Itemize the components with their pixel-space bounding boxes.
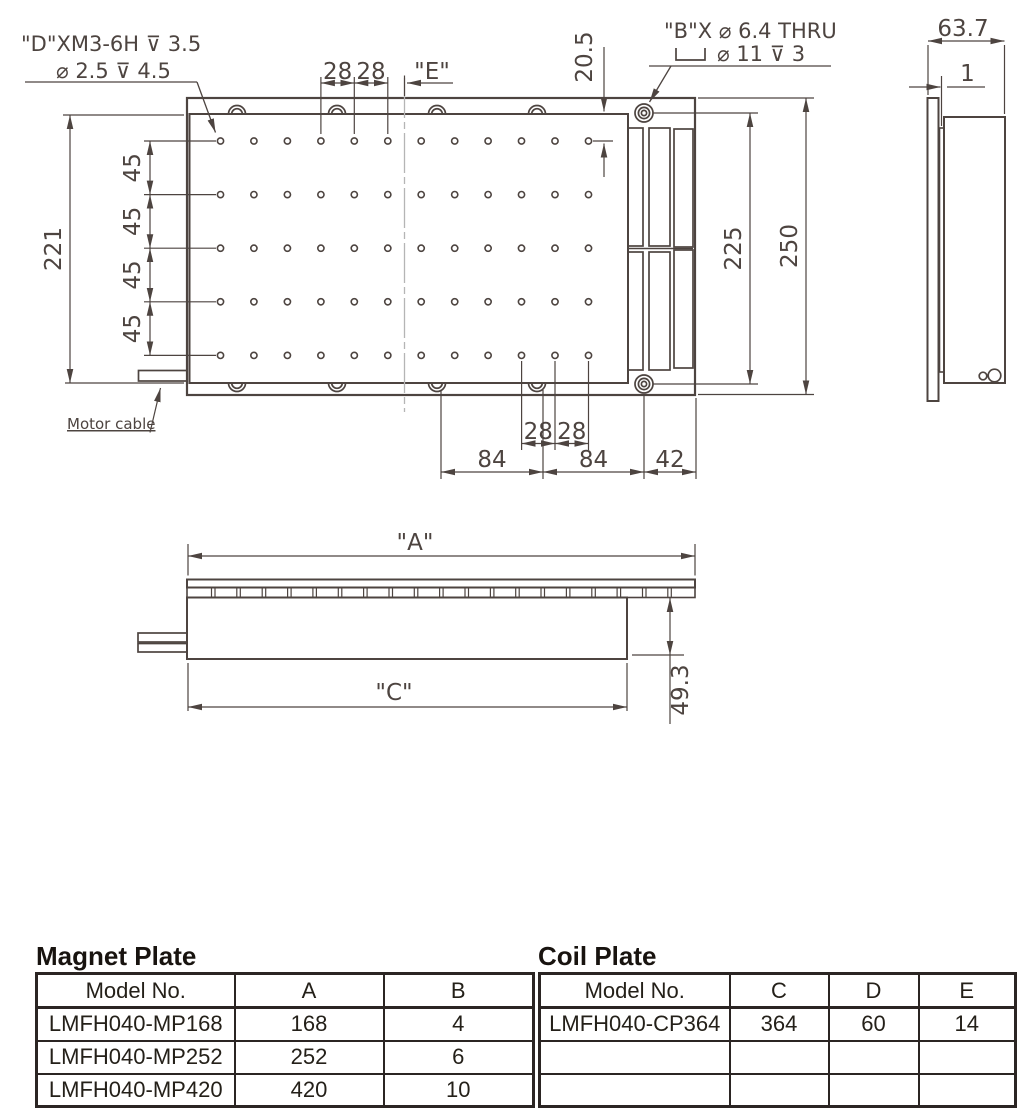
coil-e-cell: 14 [919, 1008, 1016, 1041]
coil-body-side [944, 117, 1005, 383]
dim-c-ref: "C" [375, 680, 412, 706]
motor-cable-stub [139, 371, 188, 382]
dim-e-ref: "E" [414, 59, 450, 85]
coil-header-c: C [730, 974, 829, 1008]
table-row: LMFH040-MP168 168 4 [37, 1008, 534, 1041]
front-view: "A" "C" 49.3 [138, 530, 695, 724]
counterbore-hole-top [635, 104, 653, 122]
motor-cable-label: Motor cable [67, 415, 155, 433]
coil-c-cell [730, 1074, 829, 1107]
dim-bottom-pitch-1: 28 [524, 419, 553, 445]
coil-header-e: E [919, 974, 1016, 1008]
coil-e-cell [919, 1041, 1016, 1074]
coil-header-model: Model No. [540, 974, 730, 1008]
dim-a-ref: "A" [397, 530, 434, 556]
magnet-model-cell: LMFH040-MP420 [37, 1074, 235, 1107]
magnet-b-cell: 10 [384, 1074, 534, 1107]
table-row [540, 1074, 1016, 1107]
side-view: 63.7 1 [909, 16, 1005, 401]
magnet-plate-side [928, 98, 939, 401]
cable-front-upper [138, 633, 187, 642]
coil-plate-title: Coil Plate [538, 941, 656, 972]
d-hole-note-line1: "D"XM3-6H ⊽ 3.5 [21, 32, 201, 56]
coil-d-cell [829, 1074, 919, 1107]
b-hole-note-line2: ⌀ 11 ⊽ 3 [717, 42, 805, 66]
coil-plate-table: Model No. C D E LMFH040-CP364 364 60 14 [538, 972, 1017, 1108]
magnet-model-cell: LMFH040-MP252 [37, 1041, 235, 1074]
magnet-header-model: Model No. [37, 974, 235, 1008]
magnet-segment-strip [187, 588, 695, 598]
dim-bottom-pitch-2: 28 [557, 419, 586, 445]
coil-model-cell [540, 1074, 730, 1107]
magnet-b-cell: 4 [384, 1008, 534, 1041]
dim-row-pitch-1: 45 [120, 153, 146, 182]
coil-d-cell [829, 1041, 919, 1074]
magnet-b-cell: 6 [384, 1041, 534, 1074]
magnet-a-cell: 168 [235, 1008, 384, 1041]
technical-drawing: 221 45 45 45 45 28 28 "E" [0, 0, 1029, 920]
magnet-model-cell: LMFH040-MP168 [37, 1008, 235, 1041]
coil-header-d: D [829, 974, 919, 1008]
table-row [540, 1041, 1016, 1074]
coil-model-cell [540, 1041, 730, 1074]
dim-top-pitch-1: 28 [323, 59, 352, 85]
coil-d-cell: 60 [829, 1008, 919, 1041]
magnet-plate-title: Magnet Plate [36, 941, 196, 972]
coil-plate-front [187, 598, 627, 660]
magnet-header-a: A [235, 974, 384, 1008]
dim-row-pitch-4: 45 [120, 314, 146, 343]
dim-gap: 1 [960, 61, 975, 87]
magnet-plate-table: Model No. A B LMFH040-MP168 168 4 LMFH04… [35, 972, 535, 1108]
dim-bottom-spacing-2: 84 [579, 447, 608, 473]
side-hole-small [979, 372, 987, 380]
counterbore-hole-bottom [635, 375, 653, 393]
coil-model-cell: LMFH040-CP364 [540, 1008, 730, 1041]
inner-plate-outline [190, 114, 629, 383]
side-hole-large [988, 369, 1001, 382]
dim-top-offset: 20.5 [572, 31, 598, 82]
d-hole-note-line2: ⌀ 2.5 ⊽ 4.5 [56, 59, 171, 83]
counterbore-icon [676, 48, 705, 60]
b-hole-note-line1: "B"X ⌀ 6.4 THRU [664, 19, 837, 43]
magnet-a-cell: 420 [235, 1074, 384, 1107]
dim-side-width: 63.7 [937, 16, 988, 42]
dim-left-height: 221 [41, 227, 67, 271]
coil-e-cell [919, 1074, 1016, 1107]
edge-notches [229, 106, 546, 392]
magnet-plate-front [187, 580, 695, 588]
dim-overall-height: 250 [777, 224, 803, 268]
row-pitch-extensions [144, 141, 216, 355]
dim-front-height: 49.3 [668, 664, 694, 715]
table-row: LMFH040-CP364 364 60 14 [540, 1008, 1016, 1041]
dim-inner-height: 225 [721, 227, 747, 271]
outer-plate-outline [187, 98, 695, 395]
dim-row-pitch-2: 45 [120, 207, 146, 236]
dim-bottom-spacing-3: 42 [655, 447, 684, 473]
segment-ticks [212, 588, 672, 598]
plan-view [139, 78, 696, 412]
dim-bottom-spacing-1: 84 [477, 447, 506, 473]
coil-c-cell [730, 1041, 829, 1074]
magnet-header-b: B [384, 974, 534, 1008]
dim-row-pitch-3: 45 [120, 260, 146, 289]
table-row: LMFH040-MP252 252 6 [37, 1041, 534, 1074]
dim-top-pitch-2: 28 [356, 59, 385, 85]
table-row: LMFH040-MP420 420 10 [37, 1074, 534, 1107]
drawing-page: 221 45 45 45 45 28 28 "E" [0, 0, 1029, 1116]
coil-c-cell: 364 [730, 1008, 829, 1041]
magnet-a-cell: 252 [235, 1041, 384, 1074]
cable-front-lower [138, 644, 187, 653]
